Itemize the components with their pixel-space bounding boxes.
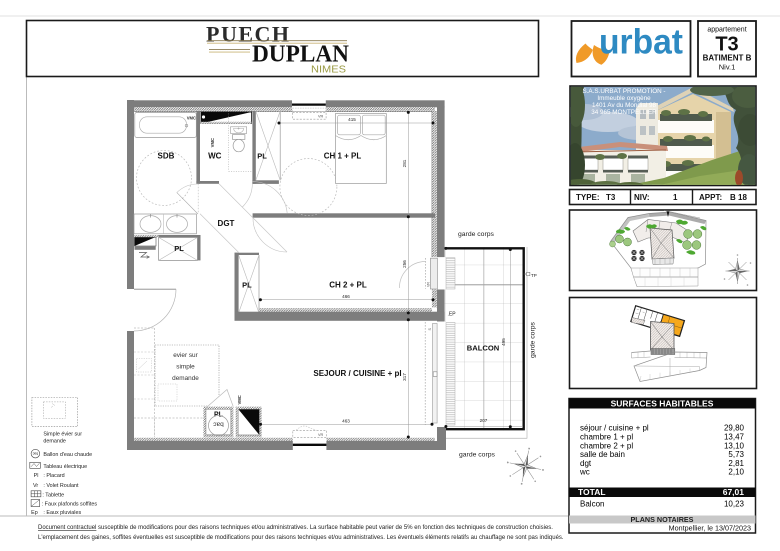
svg-text:B 18: B 18 xyxy=(730,193,747,202)
svg-text:281: 281 xyxy=(402,159,407,167)
svg-text:207: 207 xyxy=(480,418,488,423)
svg-text:Vr: Vr xyxy=(33,483,38,489)
svg-text:chambre 2 + pl: chambre 2 + pl xyxy=(580,441,633,450)
svg-text:urbat: urbat xyxy=(599,23,683,62)
svg-text:TYPE:: TYPE: xyxy=(576,193,600,202)
svg-text:Immeuble oxygène: Immeuble oxygène xyxy=(597,95,651,102)
svg-text:TOTAL: TOTAL xyxy=(578,487,606,497)
svg-text:garde corps: garde corps xyxy=(459,452,495,459)
svg-text:SDB: SDB xyxy=(158,152,175,161)
svg-text:466: 466 xyxy=(342,294,350,299)
svg-text:séjour / cuisine + pl: séjour / cuisine + pl xyxy=(580,424,649,433)
svg-text:: Eaux pluviales: : Eaux pluviales xyxy=(43,510,81,516)
svg-text:415: 415 xyxy=(348,117,356,122)
svg-text:10,23: 10,23 xyxy=(724,500,745,509)
svg-text:bac: bac xyxy=(213,421,224,428)
svg-text:demande: demande xyxy=(172,375,199,382)
svg-text:T3: T3 xyxy=(715,34,738,56)
svg-text:Montpellier, le 13/07/2023: Montpellier, le 13/07/2023 xyxy=(669,524,751,533)
svg-text:VMC: VMC xyxy=(210,138,215,147)
svg-text:VR: VR xyxy=(318,433,324,437)
svg-text:13,10: 13,10 xyxy=(724,441,745,450)
svg-text:demande: demande xyxy=(43,438,65,444)
svg-text:2,81: 2,81 xyxy=(728,459,744,468)
svg-text:WC: WC xyxy=(208,152,222,161)
svg-text:1401 Av du Mondial 98: 1401 Av du Mondial 98 xyxy=(592,102,656,109)
svg-text:: Volet Roulant: : Volet Roulant xyxy=(43,483,79,489)
svg-text:garde corps: garde corps xyxy=(458,231,494,238)
svg-text:salle de bain: salle de bain xyxy=(580,450,625,459)
svg-text:Tableau électrique: Tableau électrique xyxy=(43,464,87,470)
svg-text:wc: wc xyxy=(579,468,590,477)
svg-text:S.A.S.URBAT PROMOTION -: S.A.S.URBAT PROMOTION - xyxy=(582,88,665,95)
svg-text:appartement: appartement xyxy=(707,27,746,34)
svg-text:: Tablette: : Tablette xyxy=(42,492,64,498)
svg-text:L'emplacement des gaines, soff: L'emplacement des gaines, soffites évent… xyxy=(38,535,564,541)
svg-text:5,73: 5,73 xyxy=(728,450,744,459)
svg-text:chambre 1 + pl: chambre 1 + pl xyxy=(580,433,633,442)
svg-text:Pl: Pl xyxy=(34,473,39,479)
svg-text:29,80: 29,80 xyxy=(724,424,745,433)
svg-text:463: 463 xyxy=(342,419,350,424)
svg-text:Document contractuel susceptib: Document contractuel susceptible de modi… xyxy=(38,525,553,531)
svg-text:VMC: VMC xyxy=(187,116,196,121)
svg-text:NIV:: NIV: xyxy=(634,193,650,202)
svg-text:TP: TP xyxy=(531,273,537,278)
svg-text:2,10: 2,10 xyxy=(728,468,744,477)
svg-text:Balcon: Balcon xyxy=(580,500,604,509)
svg-text:PL: PL xyxy=(242,281,252,290)
svg-text:bac: bac xyxy=(32,451,38,455)
svg-text:SEJOUR / CUISINE + pl: SEJOUR / CUISINE + pl xyxy=(313,369,401,378)
svg-text:VR: VR xyxy=(318,115,324,119)
svg-text:: Placard: : Placard xyxy=(43,473,64,479)
svg-text:BATIMENT B: BATIMENT B xyxy=(703,54,752,63)
svg-text:67,01: 67,01 xyxy=(723,487,745,497)
svg-text:DGT: DGT xyxy=(218,219,235,228)
svg-text:Niv.1: Niv.1 xyxy=(719,63,736,72)
svg-text:256: 256 xyxy=(402,260,407,268)
svg-text:T3: T3 xyxy=(606,193,616,202)
svg-text:PL: PL xyxy=(214,412,224,419)
svg-text:1: 1 xyxy=(673,193,678,202)
svg-text:PL: PL xyxy=(257,152,267,161)
svg-text:garde corps: garde corps xyxy=(530,322,537,358)
svg-text:13,47: 13,47 xyxy=(724,433,745,442)
svg-text:SURFACES HABITABLES: SURFACES HABITABLES xyxy=(611,399,714,409)
svg-text:dgt: dgt xyxy=(580,459,592,468)
svg-text:CH 1 + PL: CH 1 + PL xyxy=(324,151,362,160)
svg-text:PL: PL xyxy=(174,244,184,253)
svg-text:simple: simple xyxy=(176,364,195,371)
svg-text:495: 495 xyxy=(501,338,506,346)
svg-text:.EP: .EP xyxy=(448,312,457,318)
svg-text:: Faux plafonds soffites: : Faux plafonds soffites xyxy=(42,502,98,508)
svg-text:34 965 MONTPELLIER: 34 965 MONTPELLIER xyxy=(591,109,657,116)
svg-text:Ballon d'eau chaude: Ballon d'eau chaude xyxy=(43,452,92,458)
svg-text:BALCON: BALCON xyxy=(467,344,499,353)
svg-text:CH 2 + PL: CH 2 + PL xyxy=(329,281,367,290)
svg-text:APPT:: APPT: xyxy=(699,193,722,202)
svg-text:VR: VR xyxy=(427,282,431,287)
svg-text:317: 317 xyxy=(402,373,407,381)
svg-text:evier sur: evier sur xyxy=(173,352,198,359)
svg-text:Simple évier sur: Simple évier sur xyxy=(43,431,82,437)
svg-text:Ep: Ep xyxy=(31,510,38,516)
svg-text:NIMES: NIMES xyxy=(311,64,346,76)
svg-text:VMC: VMC xyxy=(237,395,242,404)
